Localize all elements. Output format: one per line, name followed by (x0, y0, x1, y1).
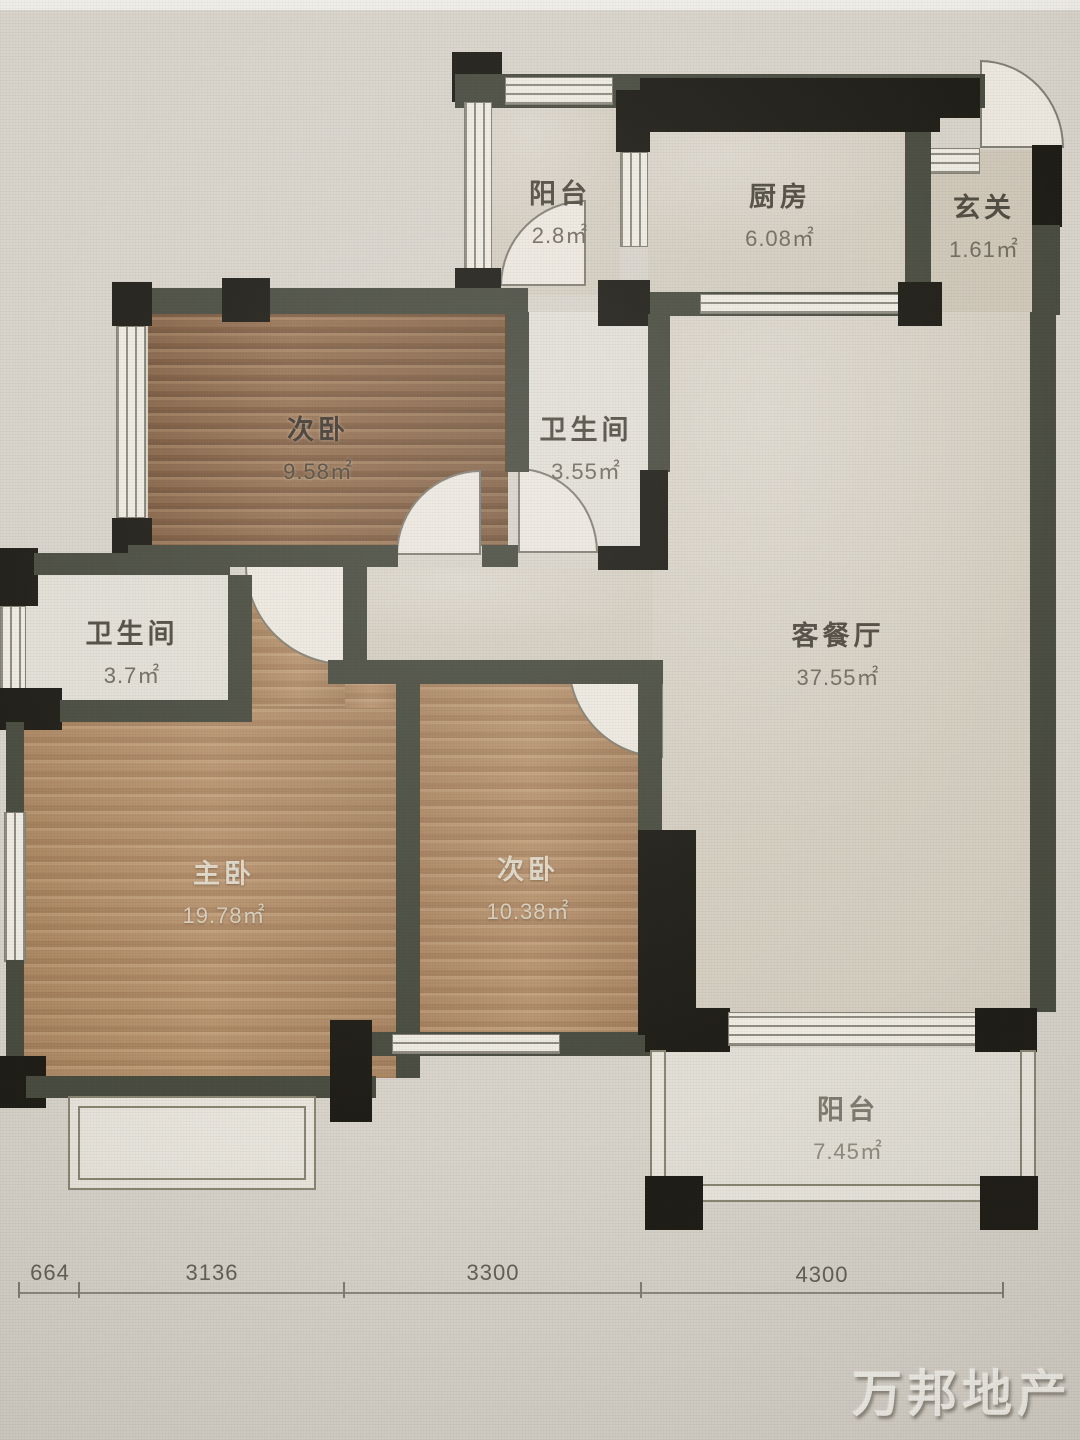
wall-segment (1032, 145, 1062, 227)
entrance-door-arc (980, 60, 1064, 148)
room-name: 卫生间 (540, 408, 633, 447)
balcony-wall (650, 1050, 666, 1184)
screen-glare-strip (0, 0, 1080, 10)
room-name: 阳台 (813, 1088, 883, 1127)
room-area: 1.61㎡ (949, 232, 1019, 264)
dimension-tick (640, 1282, 642, 1298)
room-name: 玄关 (949, 186, 1019, 225)
wall-segment (228, 575, 252, 703)
room-area: 19.78㎡ (182, 898, 265, 930)
window (700, 294, 900, 314)
wall-segment (645, 1176, 703, 1230)
room-label-living: 客餐厅 37.55㎡ (792, 614, 885, 692)
wall-segment (482, 545, 518, 567)
wall-segment (598, 546, 668, 570)
wall-segment (6, 960, 24, 1062)
window (4, 812, 26, 962)
wall-segment (918, 78, 980, 118)
dimension-label: 664 (30, 1260, 70, 1286)
room-area: 37.55㎡ (792, 660, 885, 692)
dimension-tick (78, 1282, 80, 1298)
wall-segment (645, 1008, 730, 1052)
watermark: 万邦地产 (852, 1354, 1072, 1426)
bay-window (68, 1096, 316, 1190)
dimension-tick (1002, 1282, 1004, 1298)
window (505, 77, 613, 105)
room-label-bedroom2-top: 次卧 9.58㎡ (283, 408, 353, 486)
sliding-window (728, 1012, 978, 1046)
room-area: 9.58㎡ (283, 454, 353, 486)
dimension-tick (18, 1282, 20, 1298)
room-area: 3.7㎡ (86, 658, 179, 690)
wall-segment (638, 684, 662, 834)
room-area: 2.8㎡ (529, 218, 591, 250)
window (464, 102, 492, 272)
dimension-label: 4300 (796, 1262, 849, 1288)
room-label-master: 主卧 19.78㎡ (182, 852, 265, 930)
balcony-wall (1020, 1050, 1036, 1184)
wall-segment (648, 314, 670, 472)
floorplan-photo: 阳台 2.8㎡ 厨房 6.08㎡ 玄关 1.61㎡ 次卧 9.58㎡ 卫生间 3… (0, 0, 1080, 1440)
room-name: 客餐厅 (792, 614, 885, 653)
wall-segment (396, 662, 420, 1078)
wall-segment (34, 553, 230, 575)
room-area: 6.08㎡ (745, 221, 815, 253)
wall-segment (980, 1176, 1038, 1230)
wall-segment (898, 282, 942, 326)
wall-segment (60, 700, 252, 722)
room-name: 厨房 (745, 175, 815, 214)
wall-segment (598, 280, 650, 326)
wall-segment (328, 660, 663, 684)
wall-segment (638, 830, 696, 1035)
room-label-entry: 玄关 1.61㎡ (949, 186, 1019, 264)
dimension-tick (343, 1282, 345, 1298)
window (620, 152, 648, 247)
wall-segment (640, 78, 940, 132)
wall-segment (112, 282, 152, 326)
wall-segment (222, 278, 270, 322)
window (392, 1034, 560, 1054)
room-name: 卫生间 (86, 612, 179, 651)
room-label-kitchen: 厨房 6.08㎡ (745, 175, 815, 253)
room-name: 次卧 (283, 408, 353, 447)
wall-segment (975, 1008, 1037, 1052)
room-name: 主卧 (182, 852, 265, 891)
room-label-balcony-top: 阳台 2.8㎡ (529, 172, 591, 250)
wall-segment (1030, 312, 1056, 1012)
wall-segment (0, 548, 38, 606)
room-label-bathroom1: 卫生间 3.55㎡ (540, 408, 633, 486)
window (0, 606, 26, 690)
dimension-label: 3300 (467, 1260, 520, 1286)
room-name: 次卧 (486, 848, 569, 887)
dimension-label: 3136 (186, 1260, 239, 1286)
room-label-bedroom2-low: 次卧 10.38㎡ (486, 848, 569, 926)
room-area: 3.55㎡ (540, 454, 633, 486)
wall-segment (343, 558, 367, 666)
wall-segment (1032, 225, 1060, 315)
room-area: 10.38㎡ (486, 894, 569, 926)
room-area: 7.45㎡ (813, 1134, 883, 1166)
dimension-line (18, 1292, 1004, 1294)
corridor-floor (368, 568, 653, 662)
wall-segment (505, 312, 529, 472)
room-label-balcony-bottom: 阳台 7.45㎡ (813, 1088, 883, 1166)
window (116, 326, 146, 518)
room-label-bathroom2: 卫生间 3.7㎡ (86, 612, 179, 690)
balcony-wall (664, 1184, 1022, 1202)
wall-segment (330, 1020, 372, 1122)
wall-segment (128, 288, 528, 314)
room-name: 阳台 (529, 172, 591, 211)
wall-segment (26, 1076, 376, 1098)
wall-segment (6, 722, 24, 814)
